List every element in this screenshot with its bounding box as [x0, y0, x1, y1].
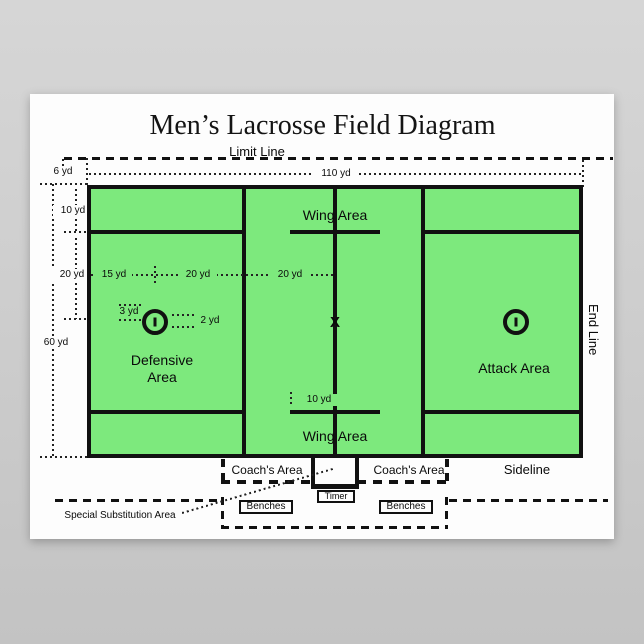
timer-box: Timer: [317, 490, 355, 503]
substitution-box-right: [355, 458, 359, 486]
height-measure-line: [52, 184, 54, 458]
sideline-label: Sideline: [487, 462, 567, 478]
benches-right-box: Benches: [379, 500, 433, 514]
wing-area-bottom-label: Wing Area: [285, 428, 385, 445]
measure-20yd-label: 20 yd: [52, 269, 92, 281]
tick-top: [40, 183, 87, 185]
page-title: Men’s Lacrosse Field Diagram: [31, 110, 614, 142]
coach-area-left-label: Coach's Area: [221, 463, 313, 477]
goal-line-tick: [154, 266, 156, 283]
defensive-goal-crease-icon: [142, 309, 168, 335]
measure-20yd-box-label: 20 yd: [179, 269, 217, 281]
right-wing-line: [421, 185, 425, 458]
tick-field-right: [582, 160, 584, 187]
attack-box-bottom-line: [421, 410, 583, 414]
width-measure-label: 110 yd: [314, 168, 358, 180]
tick-20yd: [64, 318, 87, 320]
end-line-label: End Line: [586, 295, 601, 365]
measure-15yd-label: 15 yd: [96, 269, 132, 281]
defensive-goal-icon: [154, 318, 157, 327]
lower-limit-line-left: [55, 499, 219, 502]
coach-area-right-label: Coach's Area: [363, 463, 455, 477]
defensive-area-line2: Area: [147, 369, 177, 385]
attack-area-label: Attack Area: [464, 360, 564, 377]
crease-2yd-mark-top: [172, 314, 196, 316]
measure-60yd-label: 60 yd: [36, 337, 76, 349]
measure-20yd-center-label: 20 yd: [271, 269, 309, 281]
substitution-box-bottom: [311, 484, 359, 489]
faceoff-x-icon: X: [330, 315, 340, 330]
defensive-area-line1: Defensive: [131, 352, 193, 368]
timer-label: Timer: [325, 492, 348, 501]
lower-limit-line-right: [449, 499, 608, 502]
measure-2yd-label: 2 yd: [196, 315, 224, 327]
wing-area-top-label: Wing Area: [285, 207, 385, 224]
attack-box-top-line: [421, 230, 583, 234]
bench-area-right-edge: [445, 497, 448, 529]
left-wing-line: [242, 185, 246, 458]
limit-line-dashed: [64, 157, 613, 160]
wing-10yd-tick: [290, 392, 292, 406]
bench-area-bottom-edge: [221, 526, 448, 529]
defensive-area-label: Defensive Area: [112, 352, 212, 386]
wing-mark-top: [290, 230, 380, 234]
special-substitution-label: Special Substitution Area: [50, 510, 190, 522]
benches-left-box: Benches: [239, 500, 293, 514]
tick-10yd: [64, 231, 87, 233]
coach-area-right-bottom: [357, 480, 449, 484]
wing-10yd-label: 10 yd: [300, 394, 338, 406]
lacrosse-field-poster-scene: Men’s Lacrosse Field Diagram Limit Line …: [0, 0, 644, 644]
coach-area-left-bottom: [221, 480, 315, 484]
tick-bottom: [40, 456, 87, 458]
benches-right-label: Benches: [387, 502, 426, 512]
attack-goal-crease-icon: [503, 309, 529, 335]
wing-mark-bottom: [290, 410, 380, 414]
defensive-box-top-line: [87, 230, 246, 234]
attack-goal-icon: [515, 318, 518, 327]
crease-2yd-mark-bottom: [172, 326, 196, 328]
measure-6yd-label: 6 yd: [46, 166, 80, 178]
crease-3yd-mark-bottom: [119, 319, 142, 321]
defensive-box-bottom-line: [87, 410, 246, 414]
benches-left-label: Benches: [247, 502, 286, 512]
measure-3yd-label: 3 yd: [113, 306, 145, 318]
